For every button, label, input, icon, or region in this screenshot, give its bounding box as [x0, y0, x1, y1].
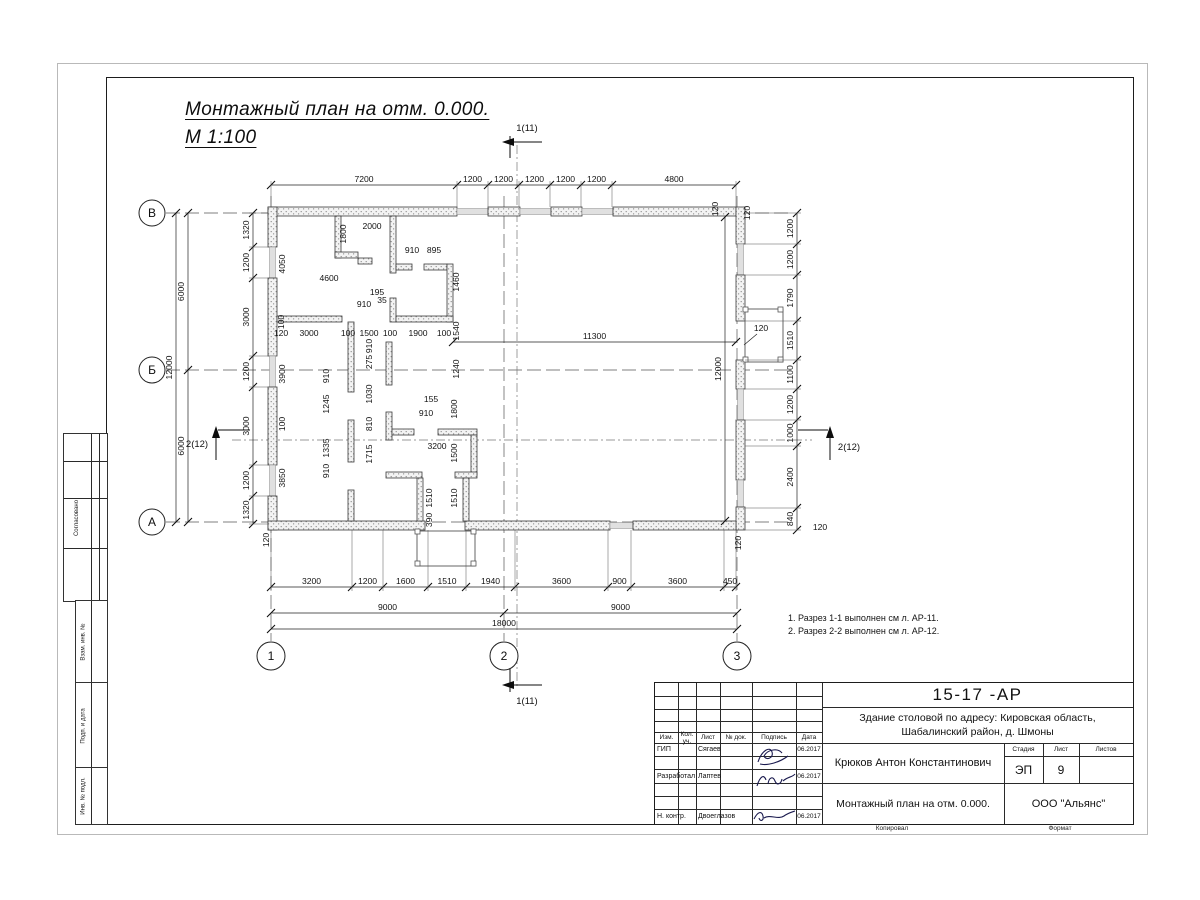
dimension-label: 910 [405, 245, 420, 255]
dimension-label: 1600 [396, 576, 415, 586]
title-block: Изм. Кол. уч. Лист № док. Подпись Дата Г… [654, 682, 1134, 825]
dimension-label: 120 [733, 536, 743, 551]
dimension-label: 6000 [176, 282, 186, 301]
dimension-label: 3000 [299, 328, 318, 338]
dimension-label: 840 [785, 512, 795, 527]
dimension-label: 1200 [587, 174, 606, 184]
dimension-label: 4050 [277, 254, 287, 273]
dimension-label: 1510 [437, 576, 456, 586]
row2-name: Лаптев [698, 769, 750, 783]
dimension-label: 3600 [552, 576, 571, 586]
stage-label: Стадия [1004, 743, 1043, 756]
dimension-label: 120 [813, 522, 828, 532]
dimension-label: 100 [383, 328, 398, 338]
author-name: Крюков Антон Константинович [822, 743, 1004, 783]
dimension-label: 100 [437, 328, 452, 338]
dimension-label: 1540 [451, 321, 461, 340]
row2-role: Разработал [657, 769, 697, 783]
dimension-label: 3900 [277, 364, 287, 383]
dimension-label: 1200 [785, 250, 795, 269]
dimension-label: 1800 [338, 224, 348, 243]
section-arrow-bottom [502, 681, 514, 689]
dimension-label: 3200 [427, 441, 446, 451]
dimension-label: 1900 [408, 328, 427, 338]
dimension-label: 1715 [364, 444, 374, 463]
dimension-label: 1320 [241, 500, 251, 519]
axis-label: А [148, 515, 156, 529]
dimension-label: 12000 [164, 355, 174, 379]
dimension-label: 120 [261, 533, 271, 548]
dimension-label: 1200 [525, 174, 544, 184]
row3-date: 06.2017 [796, 809, 822, 824]
dimension-label: 910 [364, 339, 374, 354]
dimension-label: 100 [341, 328, 356, 338]
dimension-label: 1940 [481, 576, 500, 586]
format-label: Формат [1035, 825, 1085, 832]
dimension-label: 4800 [664, 174, 683, 184]
agree-label: Согласовано [75, 499, 81, 535]
dimension-label: 35 [377, 295, 387, 305]
dimension-chains: 7200120012001200120012004800132012003000… [164, 174, 801, 633]
inv-block: Инв. № подл. [75, 767, 108, 825]
walls [268, 207, 745, 530]
project-line2: Шабалинский район, д. Шмоны [901, 725, 1053, 739]
dimension-label: 1510 [785, 331, 795, 350]
dimension-label: 3000 [241, 416, 251, 435]
porch-bottom [417, 531, 475, 566]
signature-gip [754, 744, 794, 768]
axis-label: 1 [268, 649, 275, 663]
dimension-label: 1510 [449, 488, 459, 507]
dimension-label: 1030 [364, 384, 374, 403]
dimension-label: 810 [364, 417, 374, 432]
dimension-label: 1200 [785, 219, 795, 238]
signature-nkontr [750, 807, 796, 825]
dimension-label: 1800 [449, 399, 459, 418]
dimension-label: 120 [754, 323, 769, 333]
dimension-label: 1245 [321, 394, 331, 413]
section-label: 2(12) [838, 442, 860, 453]
dimension-label: 1200 [241, 471, 251, 490]
dimension-label: 1510 [424, 488, 434, 507]
dimension-label: 1200 [494, 174, 513, 184]
vzam-block: Взам. инв. № [75, 600, 108, 684]
col-podpis: Подпись [752, 732, 796, 743]
section-arrow-right [826, 426, 834, 438]
copied-label: Копировал [862, 825, 922, 832]
dimension-label: 3600 [668, 576, 687, 586]
dimension-label: 895 [427, 245, 442, 255]
dimension-label: 1000 [785, 423, 795, 442]
podp-label: Подп. и дата [81, 708, 87, 743]
dimension-label: 2400 [785, 467, 795, 486]
dimension-label: 1460 [451, 272, 461, 291]
axis-label: 2 [501, 649, 508, 663]
podp-block: Подп. и дата [75, 682, 108, 769]
dimension-label: 1790 [785, 288, 795, 307]
dimension-label: 100 [277, 417, 287, 432]
row2-date: 06.2017 [796, 769, 822, 783]
axis-label: В [148, 206, 156, 220]
vzam-label: Взам. инв. № [81, 623, 87, 660]
col-ndok: № док. [720, 732, 752, 743]
dimension-label: 7200 [354, 174, 373, 184]
dimension-label: 120 [710, 202, 720, 217]
dimension-label: 3200 [302, 576, 321, 586]
dimension-label: 910 [321, 464, 331, 479]
dimension-label: 1200 [463, 174, 482, 184]
dimension-label: 1335 [321, 438, 331, 457]
dimension-label: 1100 [785, 365, 795, 384]
dimension-label: 100 [276, 315, 286, 330]
dimension-label: 450 [723, 576, 738, 586]
dimension-label: 390 [424, 513, 434, 528]
inv-label: Инв. № подл. [81, 777, 87, 814]
col-list: Лист [696, 732, 720, 743]
dimension-label: 9000 [611, 602, 630, 612]
signature-razrabotal [754, 768, 796, 794]
dimension-label: 1240 [451, 359, 461, 378]
col-izm: Изм. [655, 732, 678, 743]
dimension-label: 1500 [359, 328, 378, 338]
sheet-number: 9 [1043, 756, 1079, 783]
dimension-label: 1200 [785, 395, 795, 414]
dimension-label: 1320 [241, 220, 251, 239]
sheets-label: Листов [1079, 743, 1133, 756]
dimension-label: 2000 [362, 221, 381, 231]
dimension-label: 11300 [583, 331, 606, 341]
dimension-label: 4600 [319, 273, 338, 283]
agree-block: Согласовано [63, 433, 108, 602]
drawing-sheet-page: Монтажный план на отм. 0.000. М 1:100 1.… [0, 0, 1200, 900]
section-label: 2(12) [186, 439, 208, 450]
axis-grid-lines [166, 145, 812, 688]
dimension-label: 12000 [713, 357, 723, 381]
dimension-label: 910 [357, 299, 372, 309]
section-label: 1(11) [516, 696, 537, 707]
row1-name: Сягаев [698, 743, 750, 756]
section-arrow-left [212, 426, 220, 438]
dimension-label: 1200 [241, 253, 251, 272]
dimension-label: 9000 [378, 602, 397, 612]
dimension-label: 6000 [176, 436, 186, 455]
dimension-label: 120 [742, 206, 752, 221]
section-arrow-top [502, 138, 514, 146]
dimension-label: 18000 [492, 618, 516, 628]
col-data: Дата [796, 732, 822, 743]
row3-name: Двоеглазов [698, 809, 750, 824]
drawing-name: Монтажный план на отм. 0.000. [822, 783, 1004, 824]
dimension-label: 120 [274, 328, 289, 338]
company-name: ООО "Альянс" [1004, 783, 1133, 824]
dimension-label: 910 [321, 369, 331, 384]
dimension-label: 275 [364, 355, 374, 370]
axis-label: 3 [734, 649, 741, 663]
dimension-label: 3000 [241, 307, 251, 326]
dimension-label: 900 [612, 576, 627, 586]
dimension-label: 155 [424, 394, 439, 404]
dimension-label: 1200 [241, 362, 251, 381]
dimension-label: 1200 [556, 174, 575, 184]
axis-label: Б [148, 363, 156, 377]
sheet-label: Лист [1043, 743, 1079, 756]
col-kol: Кол. уч. [678, 732, 696, 743]
dimension-label: 910 [419, 408, 434, 418]
row1-date: 06.2017 [796, 743, 822, 756]
porch-right [745, 309, 783, 362]
leader-120 [744, 334, 757, 345]
dimension-label: 1500 [449, 443, 459, 462]
row1-role: ГИП [657, 743, 695, 756]
dimension-label: 1200 [358, 576, 377, 586]
section-label: 1(11) [516, 123, 537, 134]
row3-role: Н. контр. [657, 809, 697, 824]
stage-value: ЭП [1004, 756, 1043, 783]
doc-number: 15-17 -АР [822, 683, 1133, 707]
project-line1: Здание столовой по адресу: Кировская обл… [859, 711, 1095, 725]
dimension-label: 3850 [277, 468, 287, 487]
project-name: Здание столовой по адресу: Кировская обл… [822, 707, 1133, 743]
